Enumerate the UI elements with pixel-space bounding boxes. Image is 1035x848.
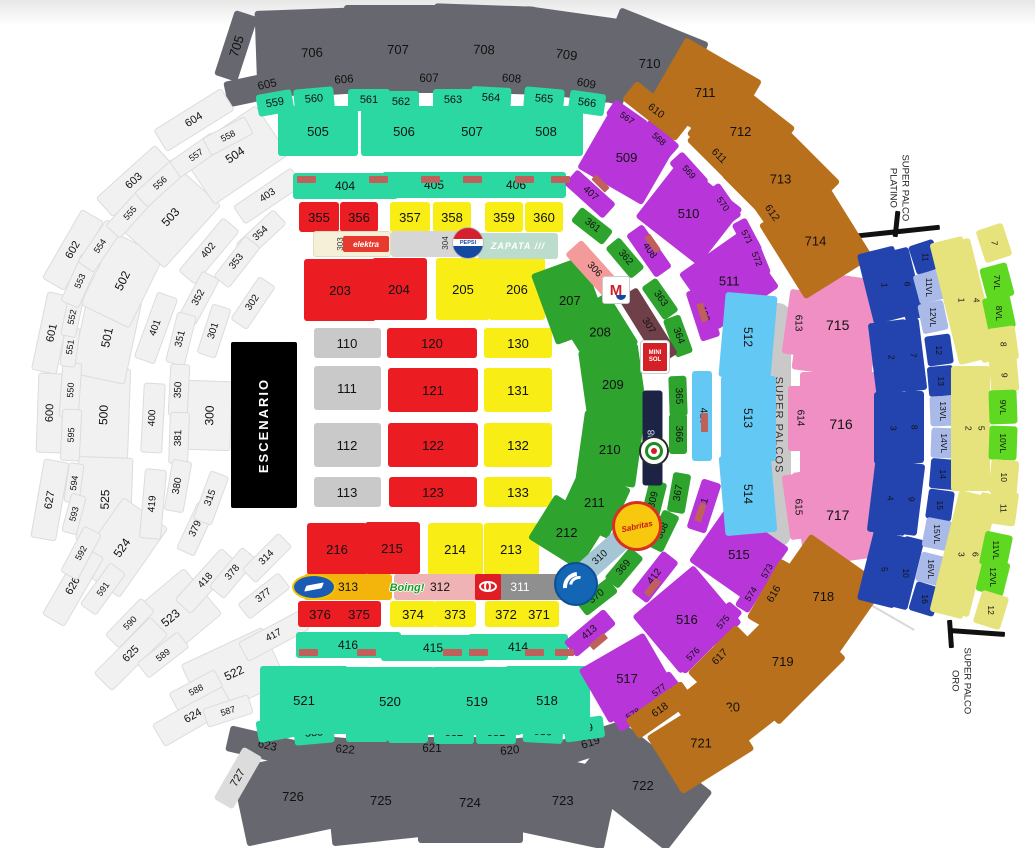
section-315[interactable]: 315 [193, 470, 230, 526]
section-label: 208 [588, 326, 610, 339]
section-label: 714 [805, 234, 827, 247]
section-label: 590 [122, 614, 139, 631]
section-label: 403 [258, 187, 277, 205]
section-359[interactable]: 359 [485, 202, 523, 232]
section-label: 595 [66, 427, 76, 442]
section-label: 357 [399, 211, 421, 224]
section-label: 612 [763, 203, 782, 223]
section-label: 13 [937, 376, 946, 385]
section-label: 503 [159, 206, 181, 229]
arena-seating-map: ESCENARIO SUPER PALCOS SUPER PALCO PLATI… [0, 0, 1035, 848]
accent-mark [463, 176, 482, 183]
section-label: 710 [638, 56, 660, 69]
section-label: 613 [792, 314, 802, 331]
section-label: 351 [174, 330, 188, 349]
section-label: 616 [765, 584, 783, 604]
section-label: 10 [1000, 472, 1009, 481]
section-304: 304 [440, 233, 452, 253]
section-label: 11VL [992, 540, 1001, 559]
section-label: 306 [585, 260, 604, 279]
section-label: 554 [92, 237, 108, 254]
section-label: 356 [348, 211, 370, 224]
section-595[interactable]: 595 [60, 409, 83, 462]
section-label: 3 [957, 552, 966, 557]
section-label: 567 [618, 110, 635, 126]
elektra-logo: elektra [343, 236, 389, 252]
section-label: 9 [907, 497, 916, 502]
section-label: 416 [338, 639, 358, 651]
section-label: 16VL [927, 559, 936, 579]
section-label: 11 [999, 504, 1008, 513]
section-518[interactable]: 518 [505, 666, 590, 734]
section-507[interactable]: 507 [429, 106, 515, 156]
section-label: 10VL [999, 433, 1008, 453]
section-375[interactable]: 375 [337, 601, 381, 627]
section-label: 12 [987, 605, 996, 614]
section-label: 509 [615, 150, 637, 163]
section-205[interactable]: 205 [436, 258, 490, 320]
section-label: 593 [68, 506, 81, 523]
section-label: 622 [335, 744, 355, 757]
section-label: 558 [219, 128, 236, 143]
section-label: 6 [903, 282, 912, 287]
section-label: 712 [730, 124, 752, 137]
section-label: 507 [461, 125, 483, 138]
section-label: 121 [422, 384, 444, 397]
section-label: 304 [442, 236, 450, 249]
section-label: 7 [909, 353, 918, 358]
section-label: 380 [172, 477, 185, 495]
section-label: 572 [750, 250, 764, 267]
section-label: 377 [254, 587, 273, 605]
section-label: 519 [466, 695, 488, 708]
section-label: 311 [510, 581, 529, 593]
section-label: 120 [421, 337, 443, 350]
section-label: 721 [689, 737, 711, 750]
accent-mark [443, 649, 462, 656]
section-label: 589 [154, 647, 171, 663]
section-label: 587 [219, 704, 236, 717]
palco-oro-9VL[interactable]: 9VL [988, 390, 1017, 425]
section-371[interactable]: 371 [519, 601, 559, 627]
section-label: 376 [309, 608, 331, 621]
section-label: 130 [507, 337, 529, 350]
section-203[interactable]: 203 [304, 259, 376, 321]
section-label: 621 [422, 744, 441, 756]
section-label: 510 [678, 206, 700, 219]
section-label: 563 [444, 95, 462, 106]
section-label: 521 [293, 694, 315, 707]
section-360[interactable]: 360 [525, 202, 563, 232]
section-label: 512 [742, 326, 754, 346]
section-label: 718 [812, 590, 834, 603]
section-414[interactable]: 414 [468, 634, 568, 660]
section-label: 215 [381, 542, 403, 555]
section-513[interactable]: 513 [721, 376, 776, 461]
section-label: 627 [43, 490, 57, 510]
section-label: 553 [73, 272, 87, 289]
section-label: 374 [402, 608, 424, 621]
section-label: 7VL [993, 274, 1002, 289]
section-label: 10 [902, 568, 911, 577]
section-label: 358 [441, 211, 463, 224]
section-400[interactable]: 400 [140, 382, 166, 453]
oro-bracket-stem [947, 620, 954, 648]
section-label: 5 [880, 567, 889, 572]
section-302[interactable]: 302 [230, 276, 276, 330]
section-label: 113 [337, 486, 358, 499]
section-label: 353 [228, 252, 246, 271]
section-label: 508 [535, 125, 557, 138]
section-label: 378 [224, 563, 242, 582]
section-label: 608 [501, 74, 521, 87]
section-350[interactable]: 350 [168, 364, 191, 417]
section-label: 302 [244, 293, 262, 312]
section-label: 706 [301, 45, 323, 59]
section-label: 419 [147, 495, 158, 512]
blue-swoosh-logo [554, 562, 598, 606]
section-label: 724 [459, 796, 481, 809]
section-label: 717 [826, 507, 849, 521]
section-514[interactable]: 514 [719, 452, 778, 536]
section-373[interactable]: 373 [434, 601, 476, 627]
zapata-logo: ZAPATA /// [480, 239, 556, 253]
section-label: 3 [889, 426, 898, 431]
section-508[interactable]: 508 [509, 106, 583, 156]
accent-mark [369, 176, 388, 183]
section-label: 611 [709, 146, 728, 165]
section-123[interactable]: 123 [389, 477, 477, 507]
section-label: 203 [329, 284, 351, 297]
section-label: 6 [971, 552, 980, 557]
section-520[interactable]: 520 [345, 667, 435, 735]
section-521[interactable]: 521 [260, 666, 348, 734]
section-label: 371 [528, 608, 550, 621]
section-120[interactable]: 120 [387, 328, 477, 358]
section-label: 313 [338, 581, 358, 593]
section-label: 8VL [995, 305, 1004, 320]
section-label: 615 [792, 498, 802, 515]
accent-mark [551, 176, 570, 183]
accent-mark [701, 413, 708, 432]
section-label: 362 [616, 248, 634, 267]
palco-oro-11[interactable]: 11 [987, 489, 1019, 527]
section-label: 715 [826, 318, 849, 332]
section-label: 359 [493, 211, 515, 224]
section-label: 9 [1000, 373, 1009, 378]
section-label: 570 [715, 195, 731, 212]
section-label: 592 [73, 544, 88, 561]
section-label: 366 [673, 426, 683, 443]
section-label: 552 [66, 309, 78, 326]
section-label: 515 [728, 548, 750, 561]
section-label: 524 [110, 535, 131, 558]
section-label: 111 [337, 382, 357, 395]
section-131[interactable]: 131 [484, 368, 552, 412]
section-label: 711 [695, 85, 716, 98]
accent-mark [525, 649, 544, 656]
section-122[interactable]: 122 [388, 423, 478, 467]
section-label: 604 [183, 110, 204, 129]
section-label: 204 [388, 283, 410, 296]
section-label: 310 [590, 549, 609, 568]
section-133[interactable]: 133 [484, 477, 552, 507]
section-label: 705 [226, 34, 245, 59]
section-label: 210 [599, 442, 621, 455]
section-label: 301 [207, 322, 222, 341]
section-label: 502 [112, 268, 132, 291]
section-label: 417 [264, 628, 283, 645]
palco-oro-10VL[interactable]: 10VL [988, 426, 1017, 461]
section-label: 606 [334, 75, 354, 88]
palco-oro-5[interactable]: 5 [972, 366, 990, 491]
section-label: 314 [258, 549, 277, 568]
section-label: 407 [580, 185, 599, 204]
palco-oro-12[interactable]: 12 [973, 590, 1010, 631]
section-label: 516 [676, 613, 698, 626]
section-374[interactable]: 374 [390, 601, 436, 627]
super-palco-oro-title: SUPER PALCO ORO [920, 636, 1000, 726]
section-label: 363 [651, 289, 669, 308]
section-label: 365 [673, 387, 684, 404]
accent-mark [555, 649, 574, 656]
accent-mark [299, 649, 318, 656]
section-label: 607 [419, 74, 438, 86]
section-label: 110 [337, 337, 358, 350]
section-label: 367 [673, 484, 686, 502]
section-111[interactable]: 111 [314, 366, 381, 410]
section-label: 205 [452, 283, 474, 296]
section-label: 300 [203, 405, 216, 425]
section-label: 564 [482, 92, 501, 104]
section-130[interactable]: 130 [484, 328, 552, 358]
section-label: 722 [632, 778, 654, 791]
eye-logo [639, 436, 669, 466]
section-label: 216 [326, 543, 348, 556]
palco-oro-9[interactable]: 9 [989, 357, 1020, 393]
section-label: 207 [558, 294, 580, 307]
toyota-logo [475, 574, 501, 600]
section-label: 8 [999, 342, 1008, 347]
section-label: 360 [533, 211, 555, 224]
section-label: 723 [552, 793, 574, 806]
section-365[interactable]: 365 [668, 376, 687, 417]
section-label: 520 [379, 695, 401, 708]
section-label: 375 [348, 608, 370, 621]
section-label: 350 [174, 381, 185, 398]
section-label: 132 [507, 439, 529, 452]
section-label: 614 [794, 410, 804, 427]
mini-sol-logo: MINI SOL [641, 341, 669, 373]
section-label: 709 [554, 46, 577, 62]
section-label: 522 [222, 663, 245, 682]
section-label: 726 [282, 790, 304, 803]
section-label: 719 [771, 655, 793, 668]
section-label: 213 [500, 543, 522, 556]
section-label: 511 [719, 273, 740, 286]
section-label: 12VL [989, 567, 998, 587]
section-label: 555 [122, 204, 139, 221]
section-213[interactable]: 213 [484, 523, 539, 575]
section-label: 708 [473, 42, 495, 56]
section-label: 401 [148, 318, 163, 337]
section-label: 206 [506, 283, 528, 296]
section-label: 212 [556, 525, 578, 538]
section-label: 2 [887, 355, 896, 360]
section-label: 307 [639, 316, 656, 335]
section-label: 4 [886, 496, 895, 501]
section-label: 525 [98, 489, 111, 509]
section-label: 415 [423, 642, 443, 654]
section-label: 12 [935, 345, 944, 354]
section-label: 1 [957, 298, 966, 303]
section-505[interactable]: 505 [278, 106, 358, 156]
section-label: 727 [229, 767, 248, 788]
section-376[interactable]: 376 [298, 601, 342, 627]
stage: ESCENARIO [231, 342, 297, 508]
section-label: 112 [337, 439, 358, 452]
section-label: 14VL [940, 433, 949, 453]
handshake-logo [292, 574, 336, 600]
section-label: 591 [95, 580, 111, 597]
section-label: 400 [148, 409, 159, 426]
section-label: 214 [444, 543, 466, 556]
section-label: 372 [495, 608, 517, 621]
section-label: 523 [158, 607, 181, 629]
section-label: 122 [422, 439, 444, 452]
section-label: 15VL [933, 524, 942, 544]
section-label: 7 [990, 241, 999, 246]
section-label: 133 [507, 486, 529, 499]
boing-logo: Boing! [385, 580, 429, 596]
section-label: 518 [536, 694, 558, 707]
section-label: 600 [44, 404, 56, 423]
section-label: 506 [393, 125, 415, 138]
section-label: 620 [500, 745, 520, 758]
section-label: 500 [97, 405, 110, 425]
palco-oro-7[interactable]: 7 [975, 223, 1012, 264]
section-label: 4 [972, 298, 981, 303]
section-label: 561 [360, 95, 378, 106]
section-label: 575 [715, 613, 732, 630]
section-label: 15 [936, 500, 945, 509]
section-label: 2 [964, 426, 973, 431]
section-132[interactable]: 132 [484, 423, 552, 467]
palco-platino-8[interactable]: 8 [904, 391, 924, 463]
section-label: 16 [921, 594, 930, 603]
section-label: 713 [770, 172, 792, 185]
section-label: 501 [98, 326, 114, 348]
section-label: 355 [308, 211, 330, 224]
section-label: 617 [710, 647, 730, 667]
section-label: 211 [584, 495, 605, 508]
section-label: 569 [681, 163, 698, 180]
section-label: 556 [151, 175, 168, 192]
section-367[interactable]: 367 [667, 472, 692, 515]
section-214[interactable]: 214 [428, 523, 483, 575]
section-label: 312 [430, 581, 450, 593]
section-204[interactable]: 204 [372, 258, 427, 320]
section-215[interactable]: 215 [365, 522, 420, 574]
section-label: 364 [670, 326, 685, 345]
accent-mark [297, 176, 316, 183]
section-381[interactable]: 381 [168, 412, 190, 465]
section-label: 404 [335, 180, 355, 192]
accent-mark [515, 176, 534, 183]
section-113[interactable]: 113 [314, 477, 381, 507]
section-label: 5 [977, 426, 986, 431]
section-label: 402 [200, 241, 218, 260]
section-label: 551 [64, 339, 75, 355]
section-label: 624 [182, 707, 203, 726]
section-label: 610 [646, 101, 666, 120]
section-label: 361 [582, 217, 601, 235]
section-366[interactable]: 366 [669, 414, 687, 454]
section-label: 594 [68, 475, 79, 491]
section-label: 514 [742, 484, 754, 504]
section-380[interactable]: 380 [164, 459, 193, 514]
section-label: 588 [187, 682, 204, 697]
section-112[interactable]: 112 [314, 423, 381, 467]
section-label: 9VL [999, 399, 1008, 414]
section-label: 352 [191, 288, 208, 307]
section-label: 560 [304, 93, 323, 106]
accent-mark [469, 649, 488, 656]
section-label: 517 [615, 672, 637, 685]
mc-logo: M [602, 276, 630, 304]
section-label: 707 [387, 43, 409, 56]
accent-mark [357, 649, 376, 656]
section-357[interactable]: 357 [390, 202, 430, 232]
section-label: 381 [174, 429, 185, 446]
section-label: 13VL [939, 401, 948, 421]
section-label: 11 [921, 253, 930, 262]
section-label: 12VL [929, 307, 938, 327]
section-label: 565 [534, 93, 553, 106]
section-label: 513 [742, 408, 754, 428]
section-label: 557 [187, 147, 204, 163]
palco-platino-12[interactable]: 12 [924, 333, 954, 366]
section-716[interactable]: 716 [800, 372, 882, 477]
section-label: 315 [203, 488, 218, 507]
section-label: 373 [444, 608, 466, 621]
section-356[interactable]: 356 [340, 202, 378, 232]
section-label: 14 [939, 469, 948, 478]
section-label: 505 [307, 125, 329, 138]
section-300[interactable]: 300 [185, 379, 232, 451]
section-label: 601 [45, 323, 60, 343]
section-label: 1 [880, 283, 889, 288]
stage-label: ESCENARIO [257, 377, 272, 472]
section-label: 369 [615, 558, 633, 577]
section-355[interactable]: 355 [299, 202, 339, 232]
section-121[interactable]: 121 [388, 368, 478, 412]
section-label: 8 [910, 425, 919, 430]
section-label: 550 [65, 382, 75, 398]
section-label: 11VL [925, 277, 934, 296]
section-label: 725 [369, 794, 391, 807]
section-label: 131 [507, 384, 529, 397]
section-377[interactable]: 377 [237, 572, 290, 620]
section-label: 209 [602, 378, 624, 391]
section-216[interactable]: 216 [307, 523, 367, 575]
section-512[interactable]: 512 [718, 291, 777, 380]
section-110[interactable]: 110 [314, 328, 381, 358]
section-label: 716 [829, 417, 852, 431]
section-614[interactable]: 614 [788, 386, 810, 451]
section-label: 618 [650, 701, 670, 720]
section-label: 123 [422, 486, 444, 499]
